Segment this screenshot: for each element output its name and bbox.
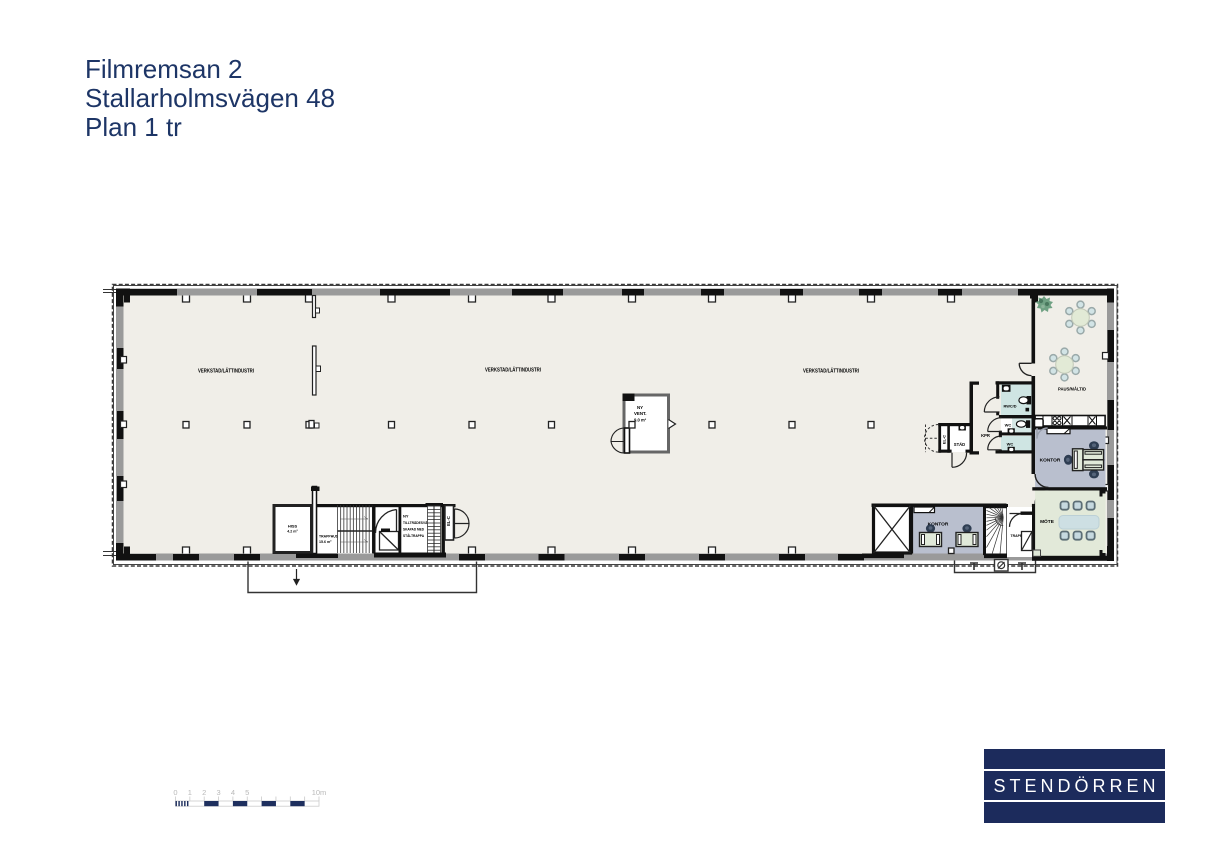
svg-text:5: 5 — [245, 788, 249, 797]
svg-text:EL-C: EL-C — [942, 435, 947, 444]
svg-text:RWC/D: RWC/D — [1004, 404, 1017, 409]
svg-text:4: 4 — [231, 788, 235, 797]
svg-text:KONTOR: KONTOR — [1040, 458, 1061, 464]
svg-text:PAUS/MÅLTID: PAUS/MÅLTID — [1058, 386, 1086, 393]
svg-text:VERKSTAD/LÄTTINDUSTRI: VERKSTAD/LÄTTINDUSTRI — [485, 367, 542, 374]
svg-text:KPR: KPR — [981, 433, 990, 438]
svg-text:3: 3 — [216, 788, 220, 797]
svg-text:VENT.: VENT. — [634, 411, 646, 416]
svg-text:NY: NY — [637, 405, 643, 410]
svg-text:9.0 m²: 9.0 m² — [634, 418, 647, 423]
svg-text:WC: WC — [1005, 423, 1012, 428]
svg-text:15.6 m²: 15.6 m² — [319, 540, 332, 544]
svg-text:EL-C: EL-C — [446, 516, 451, 526]
svg-text:VERKSTAD/LÄTTINDUSTRI: VERKSTAD/LÄTTINDUSTRI — [803, 368, 860, 375]
svg-text:TRAPPHUS: TRAPPHUS — [319, 534, 338, 539]
svg-text:1: 1 — [188, 788, 192, 797]
svg-text:HISS: HISS — [288, 524, 298, 529]
svg-text:10m: 10m — [312, 788, 327, 797]
svg-text:STÄD: STÄD — [954, 442, 965, 447]
svg-text:4.2 m²: 4.2 m² — [287, 530, 298, 534]
svg-text:SKAPAD MED: SKAPAD MED — [403, 527, 424, 532]
svg-text:STÅLTRAPPA: STÅLTRAPPA — [403, 533, 424, 538]
svg-text:VERKSTAD/LÄTTINDUSTRI: VERKSTAD/LÄTTINDUSTRI — [198, 368, 255, 375]
svg-text:0: 0 — [173, 788, 177, 797]
svg-text:TILLTRÄDESVÄG: TILLTRÄDESVÄG — [403, 520, 430, 525]
svg-text:NY: NY — [403, 514, 409, 519]
svg-text:MÖTE: MÖTE — [1040, 518, 1055, 525]
svg-text:2: 2 — [202, 788, 206, 797]
svg-text:WC: WC — [1007, 442, 1014, 447]
